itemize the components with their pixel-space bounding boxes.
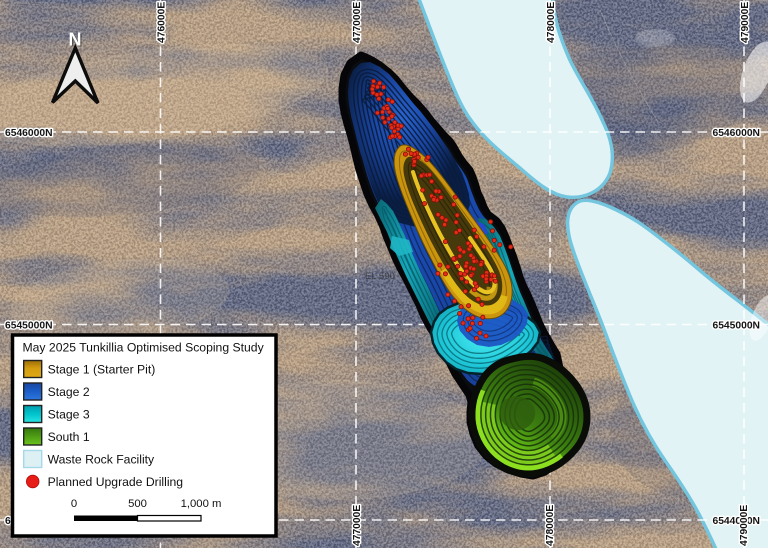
- svg-text:1,000 m: 1,000 m: [181, 498, 222, 510]
- svg-text:6546000N: 6546000N: [5, 128, 53, 139]
- svg-text:0: 0: [71, 498, 77, 510]
- svg-text:478000E: 478000E: [545, 505, 556, 546]
- svg-text:476000E: 476000E: [157, 2, 168, 43]
- svg-text:500: 500: [128, 498, 147, 510]
- svg-text:Planned Upgrade Drilling: Planned Upgrade Drilling: [48, 475, 184, 489]
- svg-text:477000E: 477000E: [352, 505, 363, 546]
- svg-text:477000E: 477000E: [352, 2, 363, 43]
- svg-text:478000E: 478000E: [546, 2, 557, 43]
- svg-text:6545000N: 6545000N: [5, 321, 53, 332]
- svg-text:Stage 3: Stage 3: [48, 408, 90, 422]
- svg-text:May 2025 Tunkillia Optimised S: May 2025 Tunkillia Optimised Scoping Stu…: [23, 341, 265, 355]
- svg-text:South 1: South 1: [48, 430, 90, 444]
- svg-text:Stage 2: Stage 2: [48, 385, 90, 399]
- svg-text:6545000N: 6545000N: [712, 321, 760, 332]
- svg-text:Stage 1 (Starter Pit): Stage 1 (Starter Pit): [48, 363, 156, 377]
- svg-text:6544000N: 6544000N: [712, 516, 760, 527]
- svg-text:479000E: 479000E: [739, 505, 750, 546]
- svg-text:Waste Rock Facility: Waste Rock Facility: [48, 453, 155, 467]
- svg-text:479000E: 479000E: [740, 2, 751, 43]
- svg-text:6546000N: 6546000N: [712, 128, 760, 139]
- svg-text:EL 590: EL 590: [365, 271, 395, 282]
